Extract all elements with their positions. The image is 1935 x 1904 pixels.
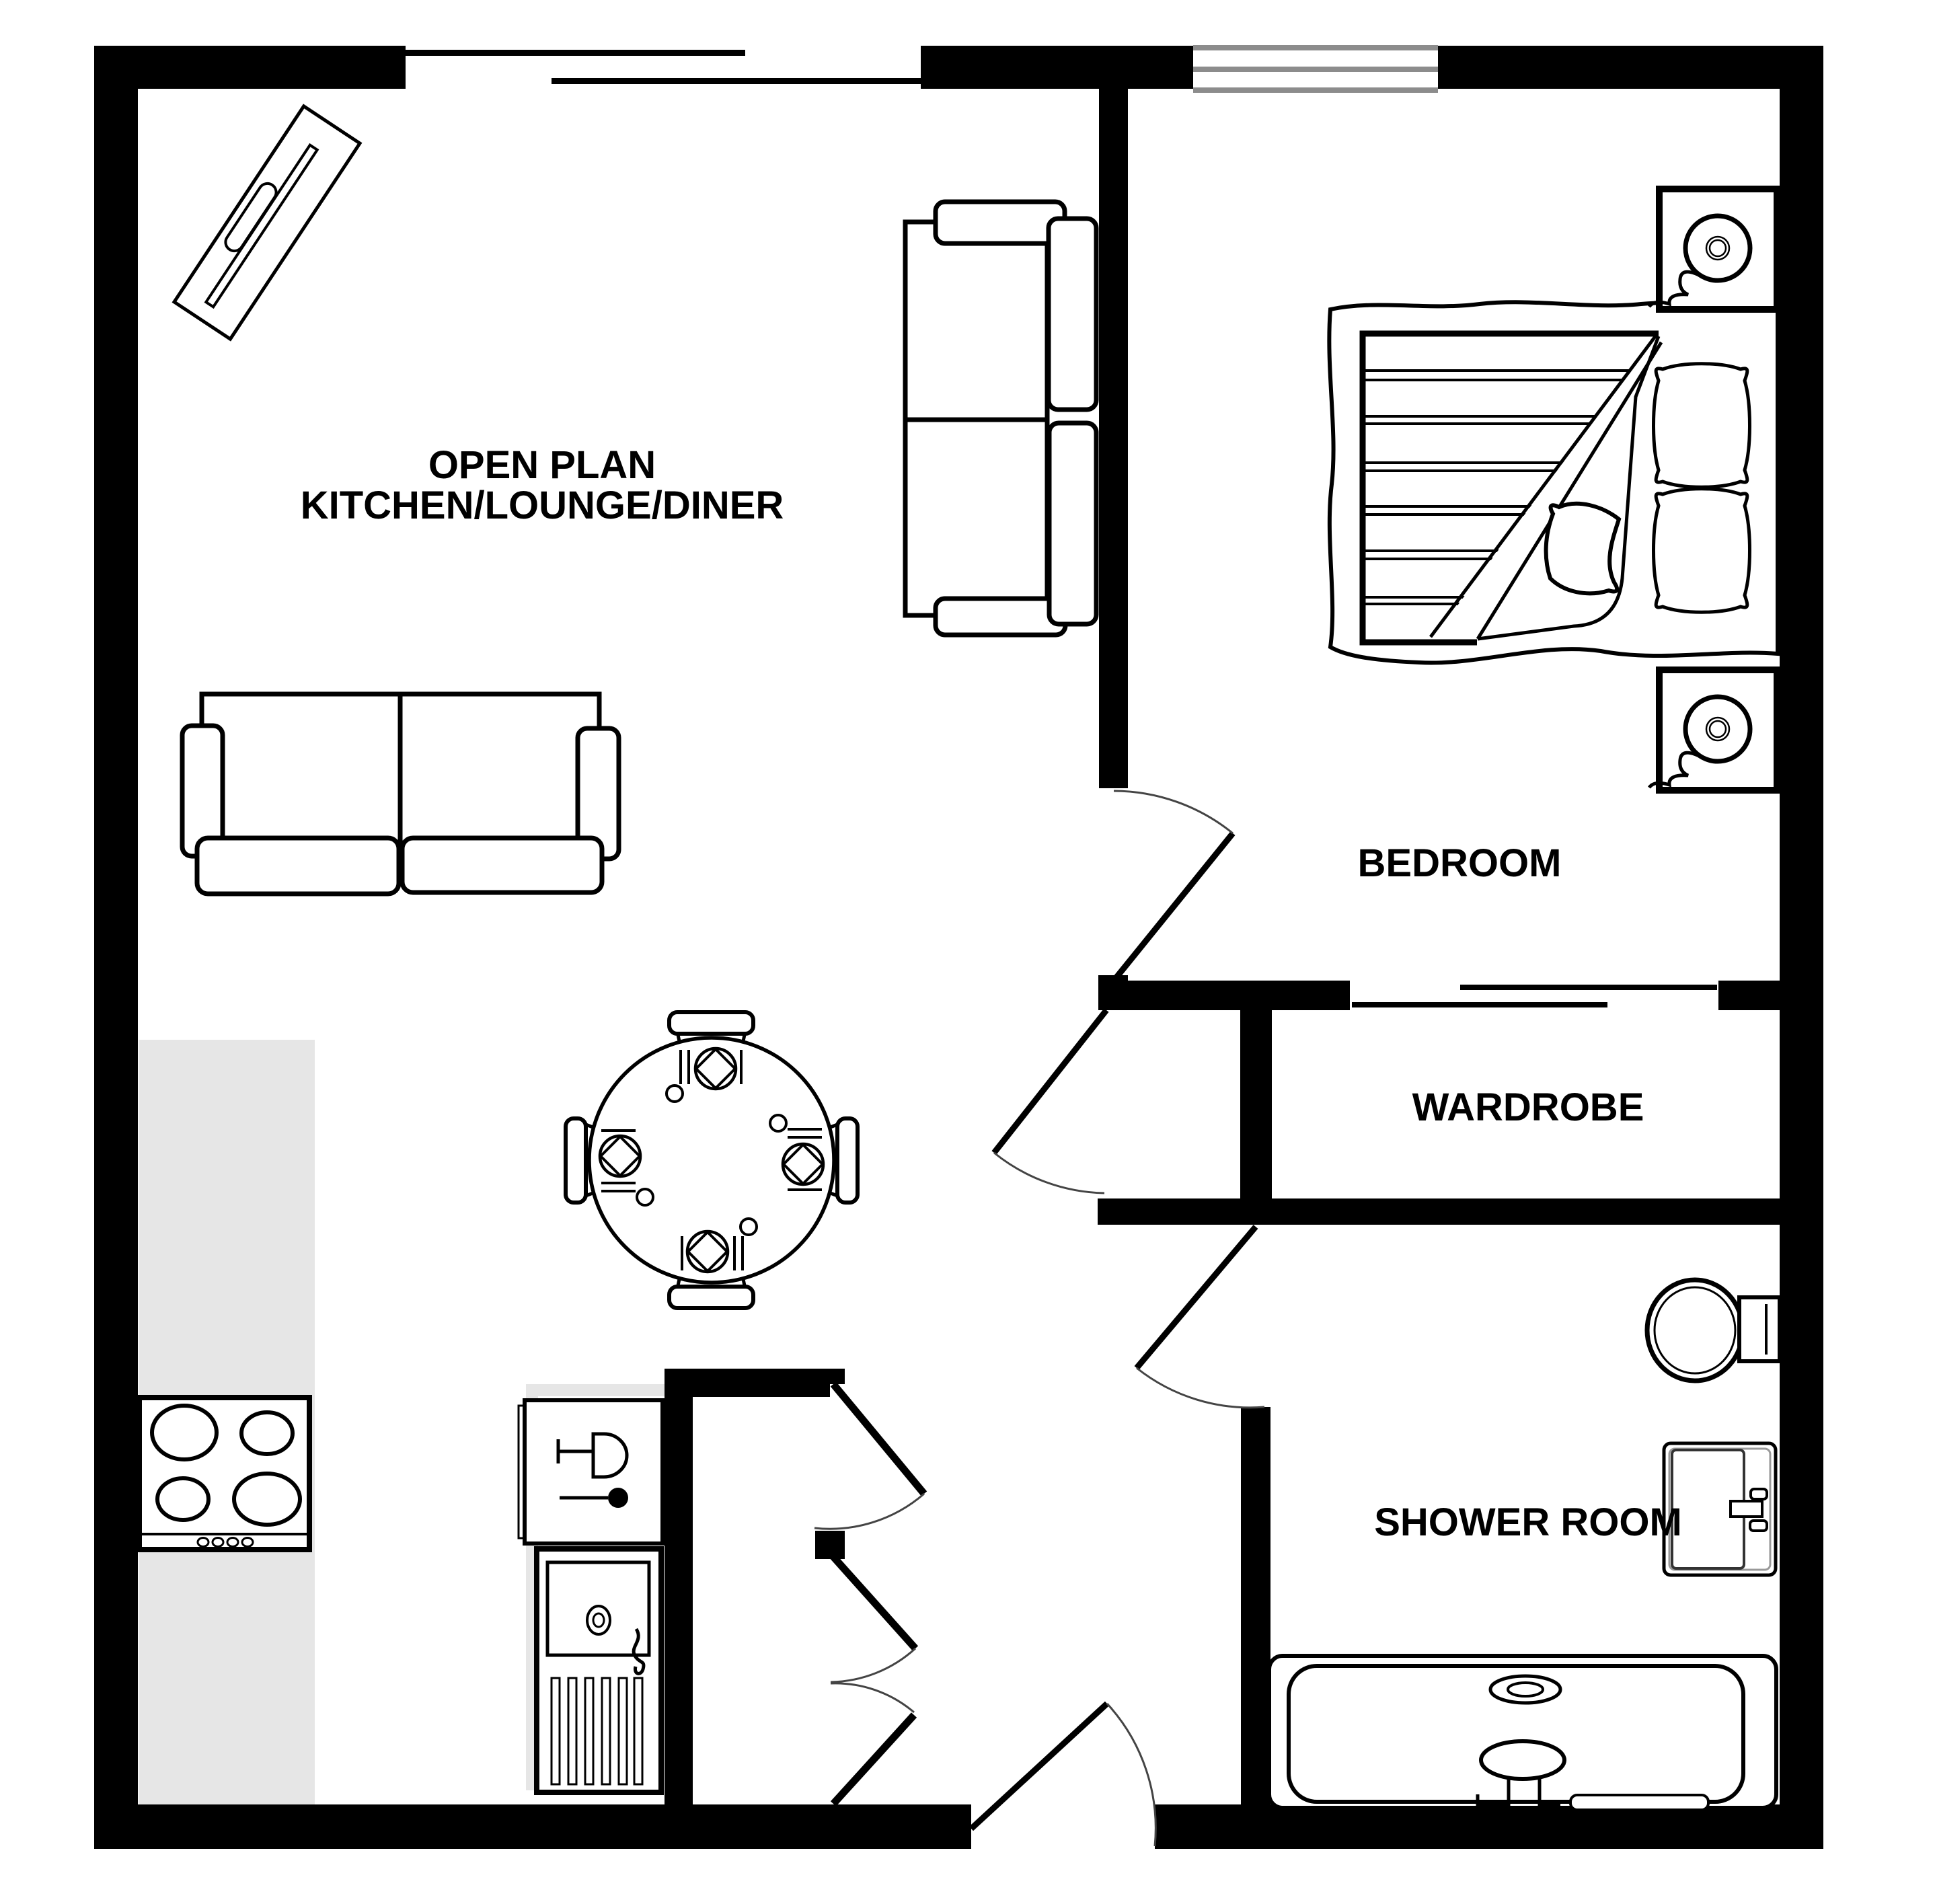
- svg-text:SHOWER ROOM: SHOWER ROOM: [1374, 1500, 1682, 1544]
- svg-text:KITCHEN/LOUNGE/DINER: KITCHEN/LOUNGE/DINER: [301, 484, 784, 527]
- svg-text:BEDROOM: BEDROOM: [1358, 841, 1562, 885]
- svg-text:WARDROBE: WARDROBE: [1412, 1086, 1644, 1129]
- svg-text:OPEN PLAN: OPEN PLAN: [428, 443, 656, 487]
